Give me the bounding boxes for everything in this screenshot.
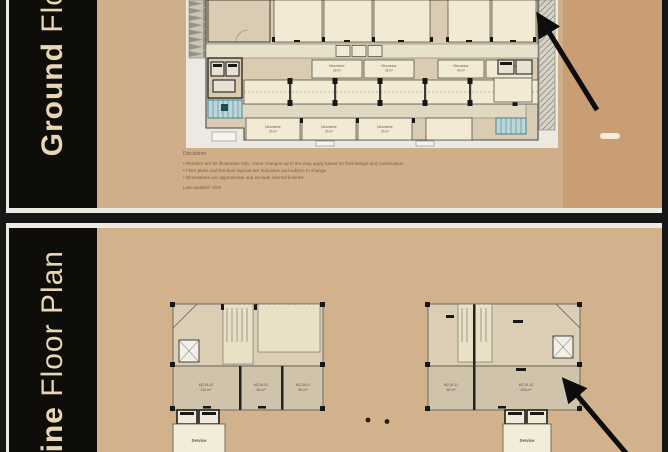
room-area: 30 m² <box>269 130 277 134</box>
ground-title-sidebar: Ground Floor Plan <box>9 0 97 208</box>
right-core <box>494 60 532 134</box>
stairs-teal-left-icon <box>208 100 242 118</box>
ramp-hatch-right-icon <box>539 0 555 130</box>
room-label: Mezzanine <box>381 64 397 68</box>
unit-label: MZ-M-10 <box>519 383 534 387</box>
elevator-right-icon <box>553 336 573 358</box>
ground-slide-title: Ground Floor Plan <box>36 0 70 156</box>
room-label: Mezzanine <box>321 125 337 129</box>
ground-title-rest: Floor Plan <box>36 0 69 42</box>
mezzanine-title-rest: Floor Plan <box>36 250 69 406</box>
ground-title-bold: Ground <box>36 42 69 156</box>
stairs-teal-right-icon <box>496 118 526 134</box>
slide-mezzanine-floor[interactable]: Mezzanine Floor Plan <box>6 223 662 452</box>
unit-label: MZ-M-01 <box>296 383 311 387</box>
cursor-dash-marker <box>600 133 620 139</box>
room-area: 30 m² <box>381 130 389 134</box>
corridor-lower <box>226 104 526 118</box>
service-core-right: Service <box>503 410 551 452</box>
mezzanine-title-sidebar: Mezzanine Floor Plan <box>9 228 97 452</box>
unit-area: 208 m² <box>520 388 532 392</box>
disclaimer-block: Disclaimer • Renders are for illustratio… <box>183 151 653 190</box>
mezzanine-right-wing: MZ-M-11 96 m² MZ-M-10 208 m² <box>425 302 582 452</box>
room-area: 30 m² <box>325 130 333 134</box>
unit-label: MZ-M-03 <box>199 383 214 387</box>
unit-area: 96 m² <box>298 388 308 392</box>
service-label: Service <box>520 438 536 443</box>
mezzanine-left-wing: MZ-M-03 110 m² MZ-M-02 96 m² MZ-M-01 96 … <box>170 302 325 452</box>
room-label: Mezzanine <box>453 64 469 68</box>
slide-ground-floor[interactable]: Ground Floor Plan <box>6 0 662 213</box>
disclaimer-bullet: • Dimensions are approximate and exclude… <box>183 174 653 181</box>
elevator-left-icon <box>179 340 199 362</box>
stairs-right-icon <box>458 304 492 366</box>
disclaimer-heading: Disclaimer <box>183 151 653 157</box>
room-area: 38 m² <box>333 69 341 73</box>
continuation-dots-icon <box>366 418 390 424</box>
service-cells-row <box>336 46 382 57</box>
ramp-hatch-left-icon <box>189 0 206 58</box>
unit-label: MZ-M-02 <box>254 383 269 387</box>
mezzanine-slide-title: Mezzanine Floor Plan <box>36 250 70 452</box>
mezzanine-title-bold: Mezzanine <box>36 406 69 452</box>
service-core-left: Service <box>173 410 225 452</box>
unit-area: 96 m² <box>446 388 456 392</box>
ground-floor-plan-drawing: Mezzanine 38 m² Mezzanine 38 m² Mezzanin… <box>186 0 558 148</box>
mezzanine-slide-canvas: MZ-M-03 110 m² MZ-M-02 96 m² MZ-M-01 96 … <box>97 228 662 452</box>
stairs-left-icon <box>223 304 253 364</box>
unit-area: 96 m² <box>256 388 266 392</box>
disclaimer-bullet: • Renders are for illustration only; min… <box>183 160 653 167</box>
document-viewer: Ground Floor Plan <box>0 0 668 452</box>
unit-label: MZ-M-11 <box>444 383 458 387</box>
ground-slide-canvas: Mezzanine 38 m² Mezzanine 38 m² Mezzanin… <box>97 0 662 208</box>
unit-area: 110 m² <box>201 388 213 392</box>
disclaimer-bullet: • Floor plans and furniture layouts are … <box>183 167 653 174</box>
upper-rooms <box>208 0 536 42</box>
room-label: Mezzanine <box>329 64 345 68</box>
room-area: 38 m² <box>385 69 393 73</box>
mezzanine-floor-plan-drawing: MZ-M-03 110 m² MZ-M-02 96 m² MZ-M-01 96 … <box>163 302 593 452</box>
room-area: 40 m² <box>457 69 465 73</box>
room-label: Mezzanine <box>265 125 281 129</box>
disclaimer-updated: Last updated: 4/26 <box>183 185 653 190</box>
room-label: Mezzanine <box>377 125 393 129</box>
service-label: Service <box>192 438 208 443</box>
